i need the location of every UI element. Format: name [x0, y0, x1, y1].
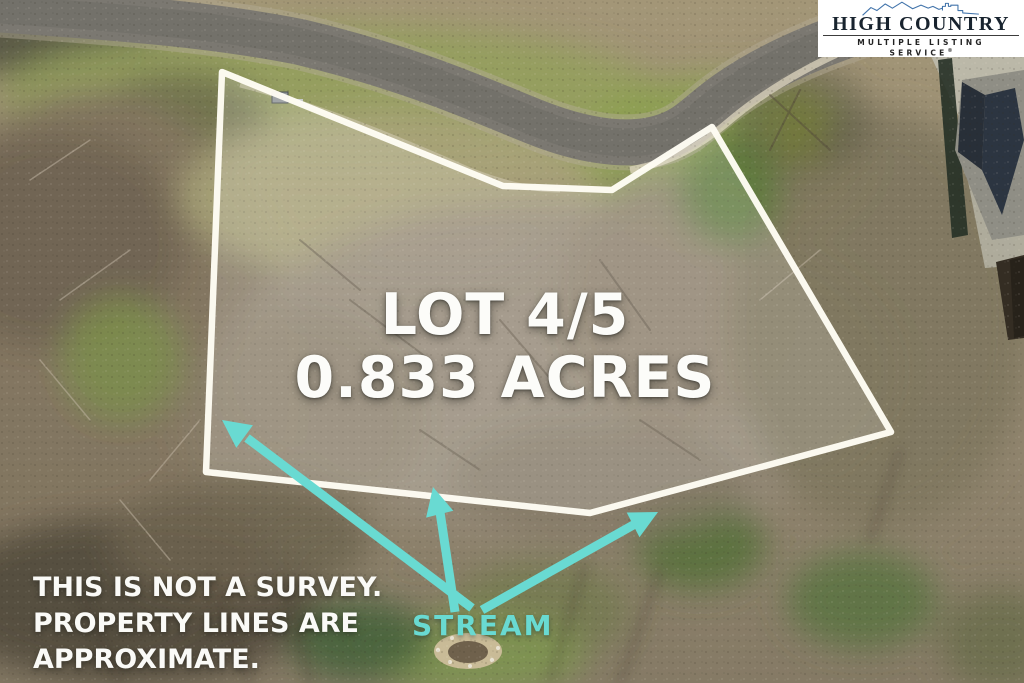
- disclaimer-text: THIS IS NOT A SURVEY. PROPERTY LINES ARE…: [33, 570, 382, 678]
- listing-photo: LOT 4/5 0.833 ACRES THIS IS NOT A SURVEY…: [0, 0, 1024, 683]
- disclaimer-line-1: THIS IS NOT A SURVEY.: [33, 570, 382, 606]
- logo-tagline-text: MULTIPLE LISTING SERVICE: [857, 38, 985, 58]
- logo-tagline: MULTIPLE LISTING SERVICE®: [823, 35, 1019, 58]
- logo-title: HIGH COUNTRY: [832, 14, 1010, 34]
- lot-number-line: LOT 4/5: [255, 284, 755, 347]
- disclaimer-line-2: PROPERTY LINES ARE: [33, 606, 382, 642]
- mls-logo: HIGH COUNTRY MULTIPLE LISTING SERVICE®: [818, 0, 1024, 57]
- lot-size-label: LOT 4/5 0.833 ACRES: [255, 284, 755, 410]
- stream-label: STREAM: [412, 609, 554, 642]
- registered-mark-icon: ®: [947, 48, 952, 54]
- lot-acreage-line: 0.833 ACRES: [255, 347, 755, 410]
- disclaimer-line-3: APPROXIMATE.: [33, 642, 382, 678]
